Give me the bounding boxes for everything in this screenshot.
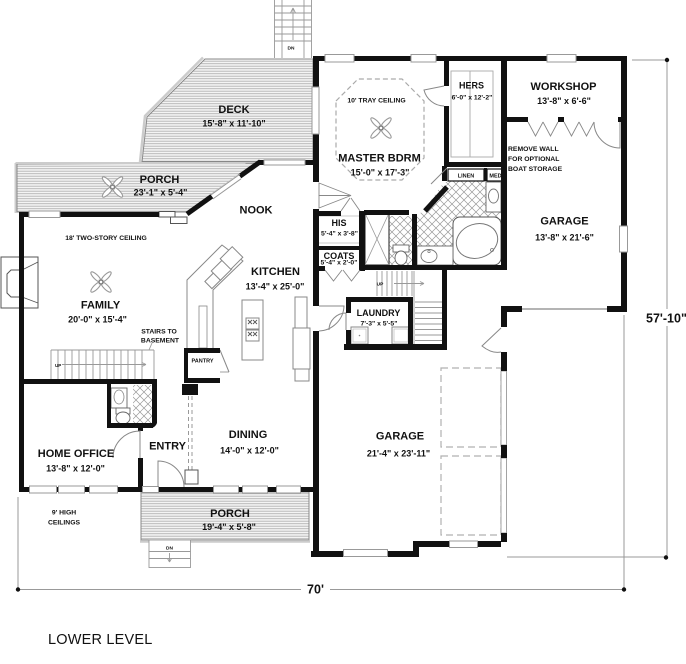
svg-text:NOOK: NOOK: [240, 205, 273, 217]
svg-text:KITCHEN: KITCHEN: [251, 266, 300, 278]
svg-text:14'-0" x 12'-0": 14'-0" x 12'-0": [220, 446, 279, 456]
svg-text:HOME OFFICE: HOME OFFICE: [38, 448, 114, 460]
svg-text:21'-4" x 23'-11": 21'-4" x 23'-11": [367, 449, 430, 459]
svg-text:13'-8" x 6'-6": 13'-8" x 6'-6": [537, 96, 591, 106]
svg-text:BASEMENT: BASEMENT: [141, 338, 180, 345]
svg-text:DINING: DINING: [229, 429, 268, 441]
svg-text:LOWER LEVEL: LOWER LEVEL: [48, 632, 153, 648]
svg-text:DECK: DECK: [218, 104, 249, 116]
svg-text:15'-0" x 17'-3": 15'-0" x 17'-3": [351, 168, 410, 178]
svg-text:18' TWO-STORY CEILING: 18' TWO-STORY CEILING: [65, 235, 147, 242]
svg-text:PORCH: PORCH: [140, 174, 180, 186]
svg-text:13'-8" x 12'-0": 13'-8" x 12'-0": [46, 464, 105, 474]
svg-text:13'-4" x 25'-0": 13'-4" x 25'-0": [246, 282, 305, 292]
svg-text:5'-4" x 2'-0": 5'-4" x 2'-0": [321, 260, 358, 267]
svg-text:MED: MED: [489, 174, 501, 180]
svg-text:ENTRY: ENTRY: [149, 441, 187, 453]
svg-text:CEILINGS: CEILINGS: [48, 520, 81, 527]
svg-text:70': 70': [307, 583, 324, 597]
svg-text:7'-3" x 5'-5": 7'-3" x 5'-5": [361, 321, 398, 328]
svg-text:UP: UP: [377, 282, 384, 288]
svg-text:MASTER BDRM: MASTER BDRM: [338, 153, 421, 165]
svg-text:13'-8" x 21'-6": 13'-8" x 21'-6": [535, 233, 594, 243]
svg-text:STAIRS TO: STAIRS TO: [141, 329, 177, 336]
svg-text:10' TRAY CEILING: 10' TRAY CEILING: [347, 98, 405, 105]
svg-text:6'-0" x 12'-2": 6'-0" x 12'-2": [452, 95, 493, 102]
svg-text:19'-4" x 5'-8": 19'-4" x 5'-8": [202, 522, 256, 532]
svg-text:DN: DN: [288, 46, 295, 52]
svg-text:GARAGE: GARAGE: [540, 216, 588, 228]
svg-text:REMOVE WALL: REMOVE WALL: [508, 146, 559, 153]
svg-text:PORCH: PORCH: [210, 508, 250, 520]
svg-text:FOR OPTIONAL: FOR OPTIONAL: [508, 156, 559, 163]
svg-text:UP: UP: [55, 363, 61, 368]
svg-text:LAUNDRY: LAUNDRY: [357, 308, 401, 318]
svg-text:57'-10": 57'-10": [646, 312, 686, 326]
svg-text:WORKSHOP: WORKSHOP: [531, 81, 597, 93]
svg-text:FAMILY: FAMILY: [81, 300, 121, 312]
svg-text:HIS: HIS: [331, 218, 346, 228]
svg-text:9' HIGH: 9' HIGH: [52, 510, 76, 517]
svg-text:5'-4" x 3'-8": 5'-4" x 3'-8": [321, 231, 358, 238]
svg-text:GARAGE: GARAGE: [376, 431, 424, 443]
svg-text:PANTRY: PANTRY: [192, 359, 214, 365]
svg-text:15'-8" x 11'-10": 15'-8" x 11'-10": [202, 119, 265, 129]
svg-text:DN: DN: [166, 546, 173, 552]
svg-text:BOAT STORAGE: BOAT STORAGE: [508, 166, 563, 173]
svg-text:HERS: HERS: [459, 81, 484, 91]
svg-text:20'-0" x 15'-4": 20'-0" x 15'-4": [68, 315, 127, 325]
svg-text:23'-1" x 5'-4": 23'-1" x 5'-4": [134, 188, 188, 198]
svg-text:LINEN: LINEN: [458, 174, 475, 180]
